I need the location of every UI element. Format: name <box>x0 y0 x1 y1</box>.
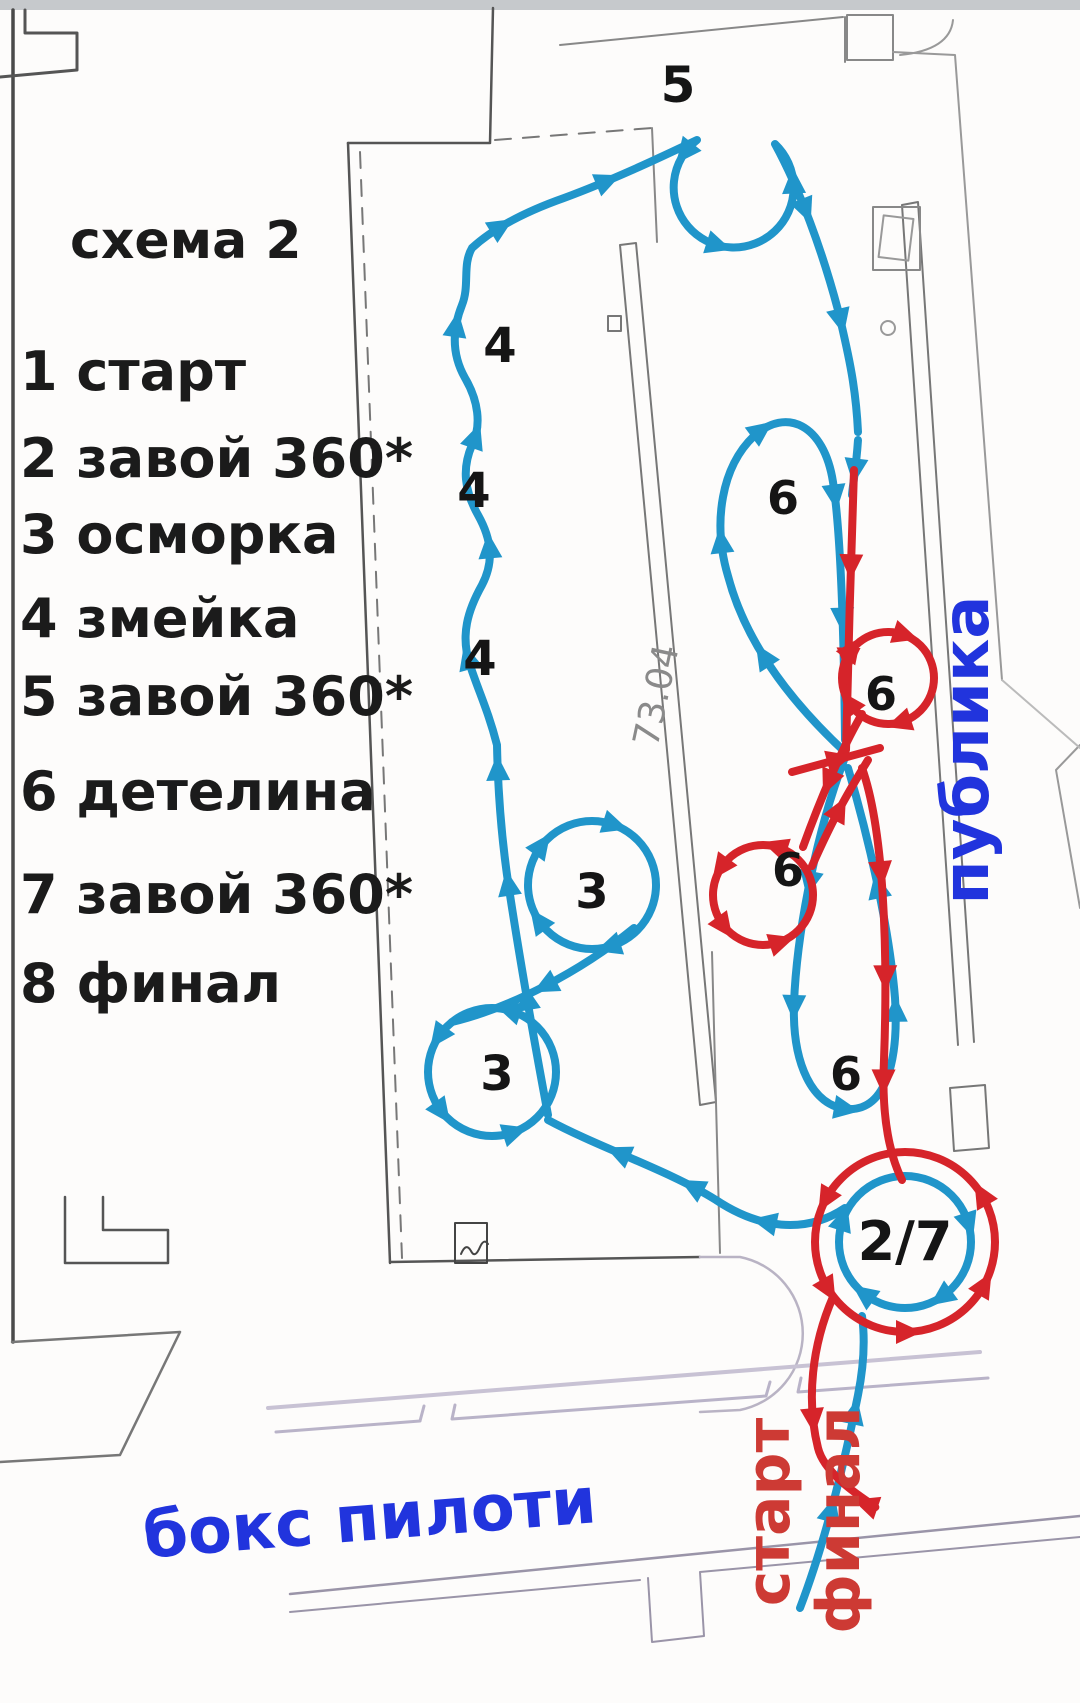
route-arrowhead <box>485 754 510 781</box>
route-arrowhead <box>592 164 625 196</box>
alcove-curve <box>700 1257 803 1412</box>
topright-diagonal-wall <box>560 17 845 62</box>
marker-loop5: 5 <box>661 56 696 114</box>
hall-bottom-wall <box>390 1257 700 1262</box>
top-dashed-line <box>495 128 652 140</box>
route-arrowhead <box>871 1069 895 1095</box>
right-outer-wall <box>893 52 1002 680</box>
legend-item-4: 4 змейка <box>20 587 299 650</box>
bottomleft-step <box>65 1197 168 1263</box>
legend-item-6: 6 детелина <box>20 760 376 823</box>
finish-label: финал <box>804 1406 874 1633</box>
inner-wall-top <box>652 128 657 242</box>
page-title: схема 2 <box>70 211 302 271</box>
marker-snake-3: 4 <box>463 631 496 687</box>
marker-clover-top: 6 <box>767 471 799 525</box>
door-swing-arc <box>900 20 953 55</box>
right-corner-join <box>1002 680 1080 748</box>
course-schema-drawing: схема 2 1 старт 2 завой 360* 3 осморка 4… <box>0 0 1080 1703</box>
route-sweep-to-eight <box>548 1120 845 1225</box>
legend-item-7: 7 завой 360* <box>20 863 413 926</box>
route-arrowhead <box>674 1169 708 1202</box>
hall-top-wall <box>348 8 493 143</box>
marker-turn27: 2/7 <box>858 1210 953 1273</box>
route-arrowhead <box>782 995 807 1022</box>
topright-pillar <box>847 15 893 60</box>
pilots-box-label: бокс пилоти <box>140 1464 599 1573</box>
bottomleft-diagonals <box>0 1332 180 1462</box>
legend-item-1: 1 старт <box>20 340 247 403</box>
scan-top-strip <box>0 0 1080 10</box>
legend-item-8: 8 финал <box>20 952 281 1015</box>
start-label: старт <box>734 1418 804 1607</box>
route-arrowhead <box>500 1116 532 1147</box>
midright-pillar-inner <box>879 215 914 260</box>
door-symbol-scribble <box>461 1242 488 1255</box>
route-arrowhead <box>896 1320 922 1344</box>
marker-eight-upper: 3 <box>575 864 608 920</box>
plan-circle <box>881 321 895 335</box>
barrier-end-box <box>950 1085 989 1151</box>
marker-snake-1: 4 <box>483 318 516 374</box>
route-arrowhead <box>600 810 632 841</box>
pilotsbox-wall-long <box>268 1352 980 1408</box>
marker-eight-lower: 3 <box>480 1046 513 1102</box>
pilotsbox-wall-segments <box>276 1378 988 1432</box>
legend-item-2: 2 завой 360* <box>20 427 413 490</box>
course-schema-page: схема 2 1 старт 2 завой 360* 3 осморка 4… <box>0 0 1080 1703</box>
marker-clover-right: 6 <box>865 667 897 721</box>
audience-label: публика <box>930 596 1004 905</box>
marker-clover-bottom: 6 <box>830 1047 862 1101</box>
right-corner-walls <box>1056 745 1080 908</box>
route-arrowhead <box>708 526 735 554</box>
marker-clover-left: 6 <box>772 843 804 897</box>
legend-item-3: 3 осморка <box>20 503 338 566</box>
barrier-bump <box>608 316 621 331</box>
route-arrowhead <box>476 531 502 559</box>
route-arrowhead <box>601 1136 634 1168</box>
legend-item-5: 5 завой 360* <box>20 665 413 728</box>
marker-snake-2: 4 <box>457 463 490 519</box>
route-arrowhead <box>822 483 849 512</box>
